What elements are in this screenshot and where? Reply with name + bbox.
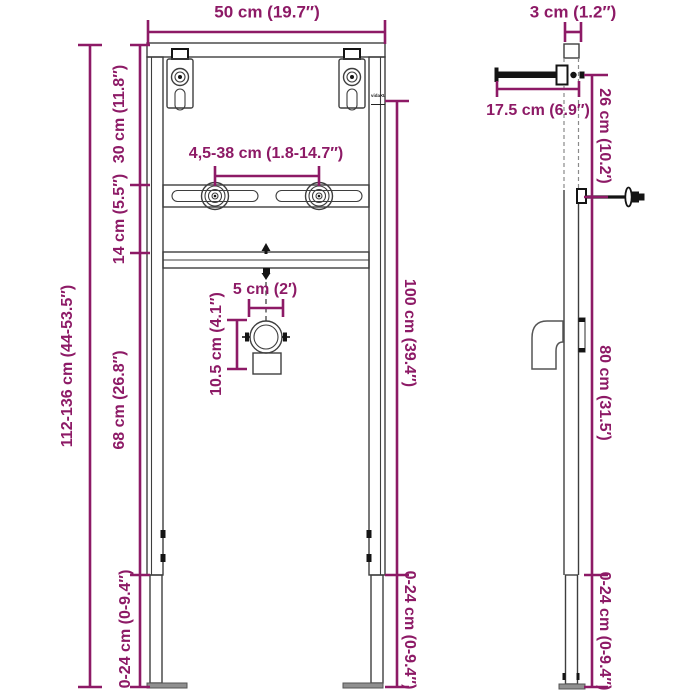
dim-right-leg-label: 0-24 cm (0-9.4″) (401, 571, 417, 690)
dim-pipe-offset-label: 5 cm (2′) (233, 282, 297, 298)
dim-overall-height-line (78, 45, 102, 687)
wall-hanger-bracket-left (167, 49, 193, 110)
dim-front-width-line (148, 20, 385, 44)
wall-hanger-bracket-right (339, 49, 365, 110)
toilet-frame-dimension-diagram: 50 cm (19.7″) 3 cm (1.2″) 112-136 cm (44… (0, 0, 700, 700)
dim-front-width-label: 50 cm (19.7″) (214, 4, 319, 21)
front-legs (147, 530, 383, 688)
dim-rail-section-label: 14 cm (5.5″) (112, 174, 128, 264)
dim-pipe-height-line (227, 320, 247, 369)
elbow-pipe (532, 318, 585, 369)
lower-crossbar (163, 243, 369, 280)
dim-side-depth-line (565, 22, 581, 42)
side-leg (559, 575, 585, 689)
rail-screw-left (202, 183, 229, 210)
dim-side-lower-label: 80 cm (31.5′) (596, 345, 612, 440)
vidaxl-logo: vidaXL (371, 92, 385, 105)
dim-side-leg-label: 0-24 cm (0-9.4″) (596, 572, 612, 691)
diagram-linework (0, 0, 700, 700)
dim-frame-height-label: 100 cm (39.4″) (401, 279, 417, 387)
dim-bracket-range-line (215, 166, 319, 186)
wall-anchor-bar (495, 66, 585, 85)
dim-arm-length-label: 17.5 cm (6.9″) (486, 103, 590, 119)
side-profile (564, 44, 579, 575)
dim-bracket-range-label: 4,5-38 cm (1.8-14.7″) (189, 146, 343, 162)
dim-left-leg-label: 0-24 cm (0-9.4″) (118, 570, 134, 689)
dim-side-depth-label: 3 cm (1.2″) (530, 4, 617, 21)
adjustable-bracket-rail (163, 183, 369, 210)
dim-side-upper-label: 26 cm (10.2′) (596, 88, 612, 183)
rail-screw-right (306, 183, 333, 210)
dim-body-section-label: 68 cm (26.8″) (112, 350, 128, 449)
dim-top-section-label: 30 cm (11.8″) (112, 65, 128, 163)
dim-overall-height-label: 112-136 cm (44-53.5″) (60, 285, 76, 447)
dim-pipe-height-label: 10.5 cm (4.1″) (209, 292, 225, 396)
